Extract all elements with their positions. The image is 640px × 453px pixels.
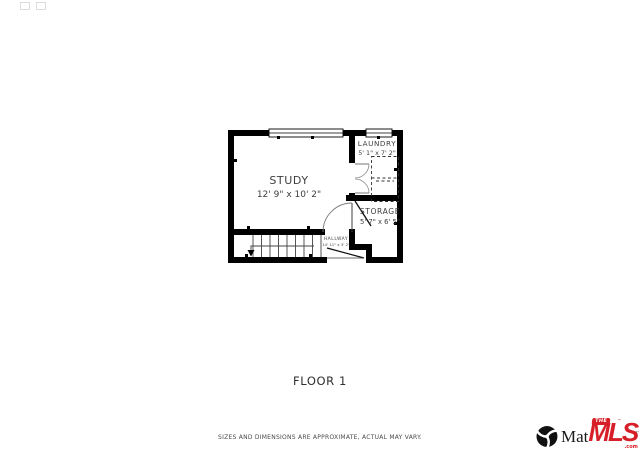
floor-label: FLOOR 1: [0, 374, 640, 388]
laundry-label: LAUNDRY: [358, 139, 396, 148]
study-dims: 12' 9" x 10' 2": [257, 190, 321, 200]
wall-laundry-bottom: [346, 195, 403, 201]
matrix-pinwheel-icon: [536, 425, 558, 448]
laundry-door-arc-bottom: [355, 179, 369, 193]
matrix-wordmark: Mat: [561, 428, 588, 445]
brand-logo: Mat r MLS THE ™ .com: [536, 420, 638, 452]
study-door-swing-arc: [323, 203, 352, 232]
laundry-door-arc-top: [355, 164, 369, 178]
mls-com-suffix: .com: [624, 444, 638, 450]
wall-bottom-left: [228, 257, 327, 263]
the-mls-logo: r MLS THE ™ .com: [588, 418, 638, 451]
windows: [269, 129, 392, 137]
mls-the-banner: THE: [592, 418, 611, 425]
wall-laundry-west-upper: [349, 130, 355, 163]
wall-study-bottom: [228, 229, 325, 235]
wall-left: [228, 130, 234, 263]
storage-dims: 5' 7" x 6' 5": [360, 218, 400, 226]
laundry-dims: 5' 1" x 7' 2": [358, 149, 396, 157]
trademark-symbol: ™: [617, 418, 621, 423]
study-label: STUDY: [269, 174, 308, 187]
storage-label: STORAGE: [360, 207, 400, 216]
hallway-dims: 14' 11" x 3' 2": [322, 242, 350, 247]
washer-dryer-dashed-box: [372, 157, 399, 202]
